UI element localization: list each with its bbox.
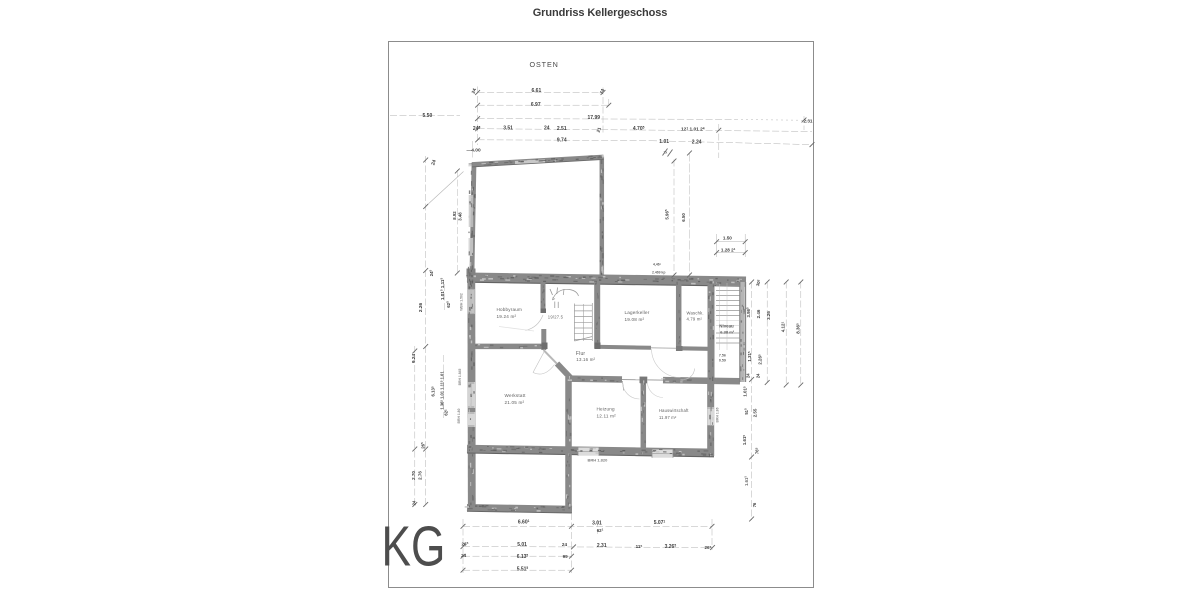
- svg-text:1.015 1.115: 1.015 1.115: [440, 278, 445, 301]
- svg-text:19/27.5: 19/27.5: [548, 315, 564, 320]
- svg-text:BRH 1.820: BRH 1.820: [588, 458, 609, 463]
- svg-text:4,46⁹: 4,46⁹: [653, 263, 662, 267]
- svg-text:245: 245: [429, 269, 434, 276]
- svg-text:265: 265: [462, 541, 469, 546]
- svg-text:2.24: 2.24: [692, 140, 702, 146]
- svg-text:74: 74: [599, 88, 606, 95]
- svg-text:121 1.01 24: 121 1.01 24: [681, 126, 705, 132]
- svg-text:3.48: 3.48: [457, 212, 462, 221]
- svg-text:2.51: 2.51: [557, 126, 567, 132]
- svg-text:9.24: 9.24: [411, 354, 417, 364]
- svg-text:OSTEN: OSTEN: [530, 60, 559, 69]
- svg-text:245: 245: [473, 125, 481, 131]
- svg-text:17.99: 17.99: [588, 115, 601, 121]
- svg-text:1.365 1.01 1.115 1.01: 1.365 1.01 1.115 1.01: [439, 371, 444, 410]
- svg-text:19.24 m²: 19.24 m²: [497, 314, 517, 319]
- svg-text:24: 24: [412, 500, 417, 505]
- svg-text:2.31: 2.31: [804, 119, 813, 124]
- svg-text:12.11 m²: 12.11 m²: [597, 414, 617, 419]
- svg-text:2.76: 2.76: [418, 471, 423, 480]
- svg-text:6.135: 6.135: [517, 553, 529, 559]
- svg-text:Werkstatt: Werkstatt: [505, 393, 527, 398]
- svg-text:5.50: 5.50: [423, 113, 433, 119]
- svg-text:24: 24: [746, 373, 751, 378]
- svg-text:24: 24: [471, 87, 478, 94]
- svg-text:13.16 m²: 13.16 m²: [576, 357, 595, 362]
- svg-text:Niveau: Niveau: [719, 324, 734, 329]
- svg-text:Lagerkeller: Lagerkeller: [625, 310, 650, 315]
- svg-text:WBH 1.502: WBH 1.502: [460, 293, 464, 311]
- svg-text:3.985: 3.985: [746, 307, 751, 317]
- svg-text:305: 305: [755, 279, 762, 287]
- svg-text:115: 115: [636, 544, 643, 549]
- svg-text:21.05 m²: 21.05 m²: [505, 400, 525, 405]
- svg-text:2.265: 2.265: [757, 354, 762, 365]
- svg-text:4.121: 4.121: [780, 321, 785, 332]
- svg-text:3.51: 3.51: [503, 125, 513, 131]
- svg-text:Waschk.: Waschk.: [687, 311, 704, 316]
- svg-text:765: 765: [754, 447, 759, 454]
- svg-text:6.97: 6.97: [531, 102, 541, 108]
- svg-text:Hauswirtschaft: Hauswirtschaft: [659, 408, 689, 413]
- svg-text:625: 625: [446, 301, 451, 308]
- svg-text:6.601: 6.601: [518, 519, 530, 525]
- svg-text:6.135: 6.135: [430, 386, 435, 396]
- svg-text:—4.00: —4.00: [467, 148, 481, 154]
- svg-text:99: 99: [563, 554, 569, 559]
- svg-text:3.01: 3.01: [592, 521, 602, 527]
- svg-text:8.365: 8.365: [795, 323, 800, 334]
- svg-text:Heizung: Heizung: [597, 407, 615, 412]
- svg-text:2x: 2x: [664, 151, 668, 155]
- svg-text:Hobbyraum: Hobbyraum: [497, 307, 523, 312]
- svg-text:2.46: 2.46: [756, 309, 761, 318]
- svg-text:621: 621: [444, 409, 449, 416]
- svg-text:4.79 m²: 4.79 m²: [687, 317, 703, 322]
- svg-text:621: 621: [597, 528, 604, 533]
- svg-text:5.01: 5.01: [517, 542, 527, 548]
- svg-text:5.515: 5.515: [517, 566, 529, 572]
- svg-text:24: 24: [544, 126, 550, 132]
- svg-text:21: 21: [596, 126, 603, 133]
- svg-text:11.97 m²: 11.97 m²: [659, 415, 677, 420]
- svg-text:1.615: 1.615: [742, 435, 747, 446]
- svg-text:24: 24: [461, 553, 467, 558]
- svg-text:1.28 21: 1.28 21: [721, 247, 736, 252]
- svg-text:24: 24: [430, 159, 438, 166]
- svg-text:6.38 m²: 6.38 m²: [720, 330, 734, 335]
- svg-text:2.469 kp: 2.469 kp: [652, 271, 665, 275]
- svg-text:8.92: 8.92: [452, 211, 457, 220]
- svg-text:BRH 1.86: BRH 1.86: [716, 407, 720, 422]
- svg-text:2.31: 2.31: [597, 543, 607, 549]
- svg-text:2.70: 2.70: [411, 471, 416, 480]
- svg-text:6.50: 6.50: [681, 213, 686, 222]
- svg-text:9.74: 9.74: [557, 138, 567, 144]
- svg-text:24: 24: [562, 542, 568, 547]
- svg-text:5.071: 5.071: [654, 519, 666, 525]
- svg-text:3.26: 3.26: [766, 311, 771, 320]
- svg-text:5.965: 5.965: [664, 209, 669, 220]
- svg-text:7.56: 7.56: [719, 354, 726, 358]
- svg-text:2.26: 2.26: [418, 303, 424, 313]
- svg-text:KG: KG: [382, 514, 446, 578]
- svg-text:0.59: 0.59: [719, 359, 726, 363]
- svg-text:265: 265: [420, 442, 425, 449]
- svg-text:1.015: 1.015: [742, 386, 747, 397]
- svg-text:2.55: 2.55: [753, 408, 758, 417]
- svg-text:BRH 1.845: BRH 1.845: [458, 369, 462, 386]
- svg-text:76: 76: [752, 502, 757, 507]
- svg-text:1.615: 1.615: [744, 476, 749, 486]
- svg-text:4.705: 4.705: [633, 126, 645, 132]
- svg-text:6.61: 6.61: [532, 88, 542, 94]
- svg-text:BRH 1.80: BRH 1.80: [457, 408, 461, 423]
- svg-text:515: 515: [744, 408, 749, 415]
- svg-text:19.08 m²: 19.08 m²: [625, 317, 645, 322]
- svg-text:1.50: 1.50: [723, 236, 732, 241]
- svg-text:24: 24: [756, 373, 761, 378]
- svg-text:1.01: 1.01: [659, 139, 669, 145]
- svg-text:3.265: 3.265: [665, 543, 677, 549]
